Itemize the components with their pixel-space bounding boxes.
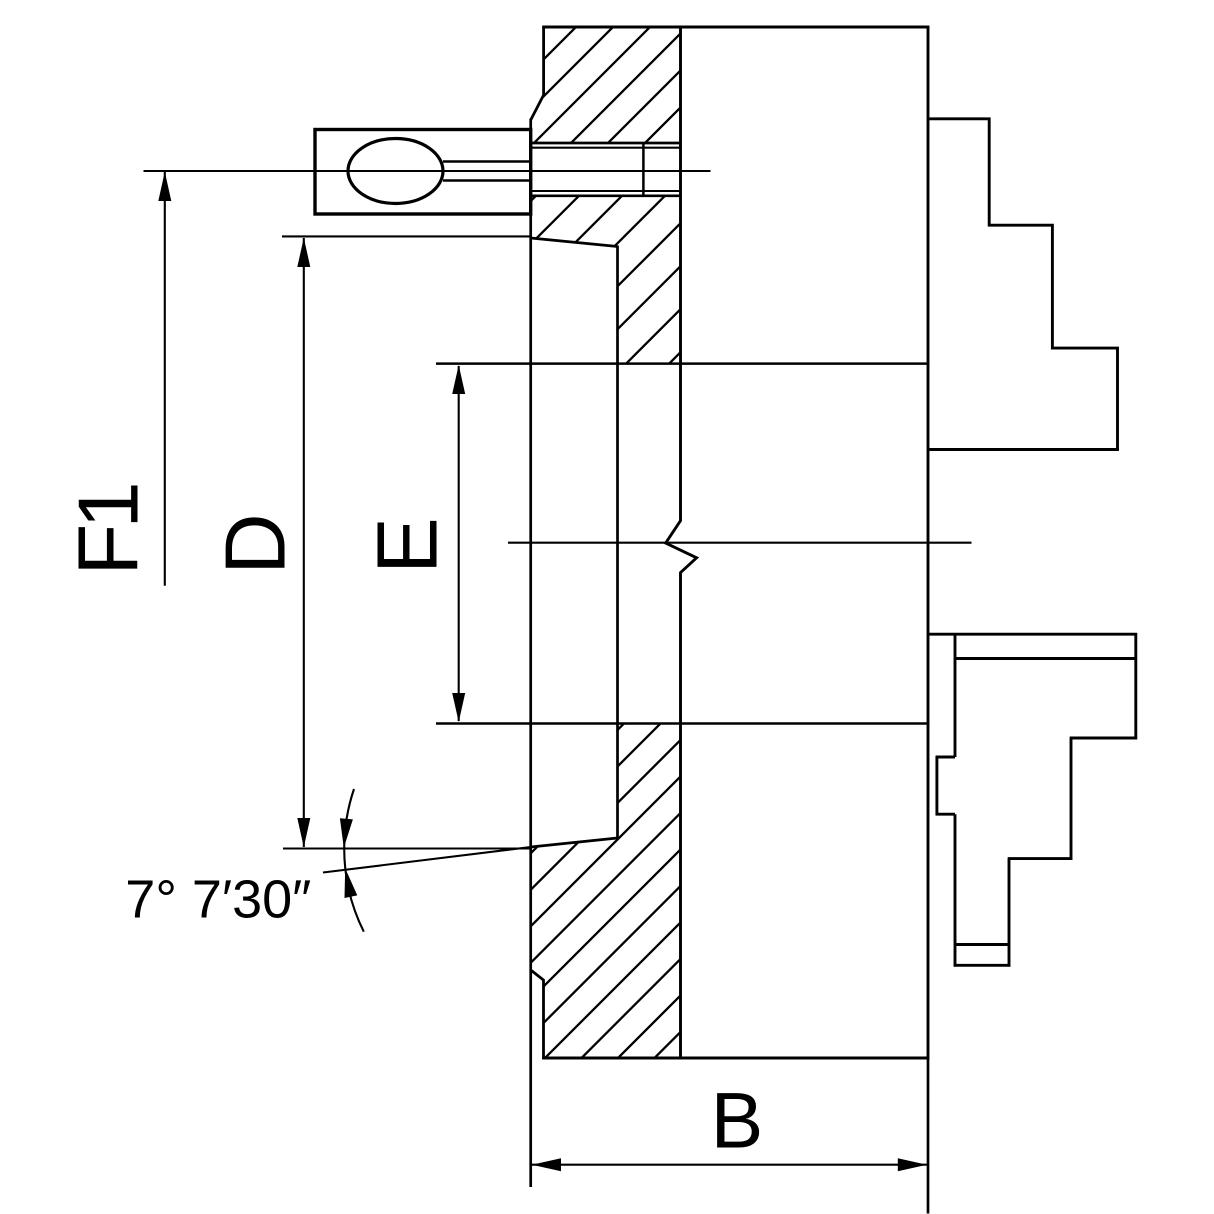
svg-text:E: E bbox=[361, 517, 456, 574]
svg-text:7° 7′30″: 7° 7′30″ bbox=[125, 870, 311, 930]
svg-text:B: B bbox=[711, 1076, 764, 1165]
svg-text:F1: F1 bbox=[62, 485, 157, 576]
svg-text:D: D bbox=[209, 513, 304, 574]
